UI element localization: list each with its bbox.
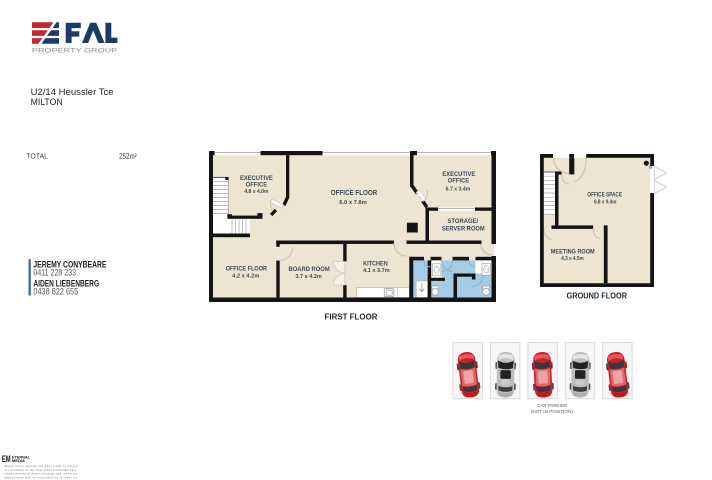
svg-text:KITCHEN: KITCHEN (363, 260, 388, 267)
svg-text:CAR PARKING: CAR PARKING (537, 403, 567, 408)
svg-text:MEDIA: MEDIA (12, 458, 25, 463)
svg-text:approximate and no responsibil: approximate and no responsibility is tak… (5, 475, 78, 479)
svg-text:BOARD ROOM: BOARD ROOM (289, 266, 330, 273)
svg-text:MILTON: MILTON (31, 96, 63, 107)
svg-text:4.8 x 4.0m: 4.8 x 4.0m (244, 189, 269, 195)
svg-text:the accuracy of the floor plan: the accuracy of the floor plans containe… (5, 468, 78, 472)
svg-text:FIRST FLOOR: FIRST FLOOR (325, 312, 379, 322)
svg-text:TOTAL: TOTAL (26, 152, 48, 161)
svg-text:6.7 x 3.4m: 6.7 x 3.4m (446, 187, 471, 193)
svg-text:measurements of doors, windows: measurements of doors, windows and rooms… (5, 472, 79, 476)
svg-text:OFFICE: OFFICE (448, 178, 470, 185)
svg-text:OFFICE FLOOR: OFFICE FLOOR (226, 265, 268, 272)
svg-text:6.8 x 9.4m: 6.8 x 9.4m (594, 199, 617, 205)
svg-text:(NOT IN POSITION): (NOT IN POSITION) (531, 409, 573, 414)
svg-text:STORAGE/: STORAGE/ (448, 218, 479, 225)
svg-text:SERVER ROOM: SERVER ROOM (442, 226, 485, 233)
svg-text:3.7 x 4.2m: 3.7 x 4.2m (295, 274, 322, 280)
svg-text:OFFICE FLOOR: OFFICE FLOOR (331, 190, 377, 197)
svg-text:Whilst every attempt has been: Whilst every attempt has been made to en… (5, 464, 79, 468)
svg-text:EM: EM (2, 454, 11, 464)
svg-text:4.1 x 3.7m: 4.1 x 3.7m (363, 268, 390, 274)
svg-text:0411 228 233: 0411 228 233 (33, 267, 76, 277)
svg-text:PROPERTY GROUP: PROPERTY GROUP (32, 49, 117, 55)
svg-text:6.0 x 7.8m: 6.0 x 7.8m (339, 200, 367, 206)
svg-text:4.2 x 4.2m: 4.2 x 4.2m (232, 273, 260, 279)
svg-text:0438 822 655: 0438 822 655 (33, 287, 78, 297)
svg-text:OFFICE SPACE: OFFICE SPACE (587, 192, 622, 199)
svg-text:MEETING ROOM: MEETING ROOM (551, 249, 595, 256)
svg-text:OFFICE: OFFICE (246, 181, 268, 188)
svg-text:GROUND FLOOR: GROUND FLOOR (567, 291, 628, 301)
svg-text:4.3 x 4.5m: 4.3 x 4.5m (561, 256, 584, 262)
svg-text:252m²: 252m² (119, 152, 137, 161)
